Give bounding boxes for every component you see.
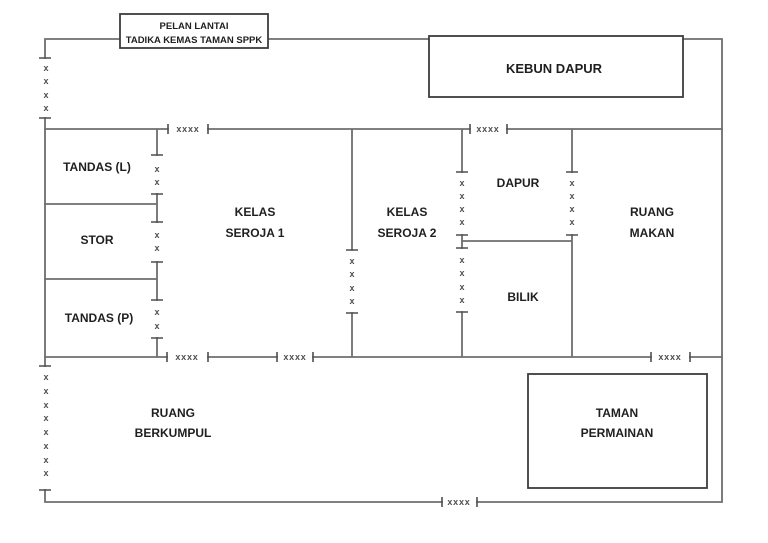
kelas-seroja-2-label-line1: KELAS <box>387 205 428 219</box>
door-swing-marker: x <box>154 164 159 174</box>
door-marker: xxxx <box>176 124 199 134</box>
door-swing-marker: x <box>349 269 354 279</box>
door-swing-marker: x <box>459 217 464 227</box>
door-swing-marker: x <box>459 268 464 278</box>
ruang-makan-label-line2: MAKAN <box>630 226 675 240</box>
dapur-label: DAPUR <box>497 176 540 190</box>
taman-permainan-label-line2: PERMAINAN <box>581 426 654 440</box>
kelas-seroja-1-label-line1: KELAS <box>235 205 276 219</box>
window-marker: x <box>43 468 48 478</box>
ruang-makan-label-line1: RUANG <box>630 205 674 219</box>
door-swing-marker: x <box>154 321 159 331</box>
tandas-p-label: TANDAS (P) <box>65 311 133 325</box>
door-swing-marker: x <box>154 230 159 240</box>
window-marker: x <box>43 413 48 423</box>
kebun-dapur-label: KEBUN DAPUR <box>506 61 603 76</box>
door-swing-marker: x <box>569 217 574 227</box>
door-swing-marker: x <box>349 256 354 266</box>
door-marker: xxxx <box>476 124 499 134</box>
door-marker: xxxx <box>283 352 306 362</box>
floor-plan-page: PELAN LANTAI TADIKA KEMAS TAMAN SPPK KEB… <box>0 0 768 543</box>
door-swing-marker: x <box>154 243 159 253</box>
plan-title-line2: TADIKA KEMAS TAMAN SPPK <box>126 35 263 46</box>
title-box: PELAN LANTAI TADIKA KEMAS TAMAN SPPK <box>120 14 268 48</box>
door-swing-marker: x <box>569 204 574 214</box>
ruang-berkumpul-label-line1: RUANG <box>151 406 195 420</box>
window-marker: x <box>43 427 48 437</box>
interior-walls <box>45 129 722 357</box>
door-swing-marker: x <box>154 177 159 187</box>
plan-title-line1: PELAN LANTAI <box>160 21 229 32</box>
floor-plan-drawing: PELAN LANTAI TADIKA KEMAS TAMAN SPPK KEB… <box>0 0 768 543</box>
taman-permainan-label-line1: TAMAN <box>596 406 638 420</box>
door-swing-marker: x <box>349 296 354 306</box>
window-marker: x <box>43 400 48 410</box>
door-swing-marker: x <box>569 191 574 201</box>
tandas-l-label: TANDAS (L) <box>63 160 131 174</box>
window-marker: x <box>43 455 48 465</box>
door-swing-marker: x <box>459 178 464 188</box>
bilik-label: BILIK <box>507 290 539 304</box>
door-swing-marker: x <box>459 255 464 265</box>
door-swing-marker: x <box>349 283 354 293</box>
window-marker: x <box>43 90 48 100</box>
room-kebun-dapur: KEBUN DAPUR <box>429 36 683 97</box>
kelas-seroja-1-label-line2: SEROJA 1 <box>226 226 285 240</box>
window-marker: x <box>43 441 48 451</box>
window-marker: x <box>43 386 48 396</box>
door-marker: xxxx <box>175 352 198 362</box>
kelas-seroja-2-label-line2: SEROJA 2 <box>378 226 437 240</box>
ruang-berkumpul-label-line2: BERKUMPUL <box>135 426 212 440</box>
room-taman-permainan: TAMAN PERMAINAN <box>528 374 707 488</box>
door-swing-marker: x <box>459 204 464 214</box>
window-marker: x <box>43 372 48 382</box>
door-swing-marker: x <box>459 295 464 305</box>
door-swing-marker: x <box>459 191 464 201</box>
window-marker: x <box>43 76 48 86</box>
window-marker: x <box>43 63 48 73</box>
stor-label: STOR <box>80 233 113 247</box>
door-swing-marker: x <box>569 178 574 188</box>
door-swing-marker: x <box>154 307 159 317</box>
door-swing-marker: x <box>459 282 464 292</box>
door-marker: xxxx <box>658 352 681 362</box>
door-marker: xxxx <box>447 497 470 507</box>
window-marker: x <box>43 103 48 113</box>
